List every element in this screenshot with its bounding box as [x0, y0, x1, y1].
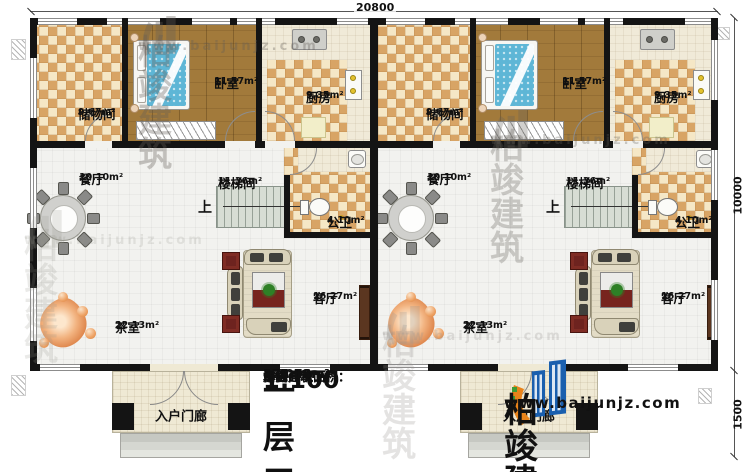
- section-marker: [11, 375, 26, 396]
- window: [30, 168, 37, 228]
- stairs-up-label: 上: [198, 197, 212, 217]
- sofa-cushion: [250, 253, 264, 262]
- door-opening: [265, 141, 295, 148]
- window: [711, 40, 718, 100]
- dining-table: [40, 195, 86, 241]
- dining-chair: [87, 213, 100, 224]
- burner: [698, 88, 704, 94]
- dining-chair: [406, 182, 417, 195]
- section-marker: [11, 39, 26, 60]
- toilet-tank: [300, 200, 309, 215]
- window: [30, 58, 37, 118]
- door-opening: [573, 141, 603, 148]
- porch-pillar: [228, 403, 250, 430]
- section-marker: [716, 27, 730, 40]
- floor-plan-canvas: 20800 10000 1500: [0, 0, 750, 472]
- nightstand-lamp: [478, 33, 487, 42]
- sofa: [227, 266, 243, 320]
- wardrobe: [136, 121, 216, 140]
- tea-room-decor-ball: [39, 338, 49, 348]
- window: [386, 18, 425, 25]
- kitchen-table: [301, 117, 326, 138]
- porch-left: 入户门廊: [112, 371, 250, 459]
- window: [30, 288, 37, 341]
- dining-table-set: [378, 185, 444, 251]
- wall: [122, 18, 128, 148]
- dining-table-set: [30, 185, 96, 251]
- party-wall: [370, 18, 378, 371]
- coffee-table: [600, 272, 633, 308]
- dining-chair: [406, 242, 417, 255]
- toilet-tank: [648, 200, 657, 215]
- sofa-cushion: [579, 288, 588, 301]
- unit-right: 储物间 9.67m² 卧室 11.57m² 厨房 9.35m² 餐厅 10.10…: [378, 18, 718, 371]
- sofa-cushion: [231, 288, 240, 301]
- sofa-cushion: [271, 322, 287, 332]
- tea-room-decor-ball: [425, 306, 436, 317]
- entry-door-opening: [150, 364, 218, 371]
- dimension-total-width: 20800: [354, 1, 396, 14]
- tea-room-decor-ball: [58, 292, 68, 302]
- staircase: [216, 186, 290, 228]
- pillow: [485, 77, 494, 103]
- staircase: [564, 186, 638, 228]
- porch-pillar: [460, 403, 482, 430]
- kitchen-sink: [640, 29, 675, 50]
- faucet: [298, 36, 305, 43]
- window: [107, 18, 160, 25]
- brand-website: www.baijunjz.com: [504, 394, 681, 412]
- dining-chair: [58, 182, 69, 195]
- toilet: [309, 198, 330, 216]
- room-label-porch: 入户门廊: [155, 406, 207, 425]
- unit-left: 储物间 9.67m² 卧室 11.57m² 厨房 9.35m² 餐厅 10.10…: [30, 18, 370, 371]
- tea-room-decor-ball: [433, 328, 444, 339]
- kitchen-sink: [292, 29, 327, 50]
- tv-cabinet: [359, 285, 370, 340]
- bed-mattress: [147, 44, 186, 106]
- door-opening: [85, 141, 112, 148]
- sofa: [575, 266, 591, 320]
- sofa-cushion: [619, 322, 635, 332]
- sofa: [592, 249, 639, 265]
- pillow: [137, 77, 146, 103]
- side-table: [222, 252, 240, 270]
- door-opening: [613, 141, 643, 148]
- side-table: [570, 315, 588, 333]
- entry-steps: [120, 433, 242, 458]
- tea-room-decor-ball: [406, 292, 416, 302]
- wall: [632, 175, 638, 238]
- bathroom-sink: [348, 150, 366, 168]
- stairs-up-label: 上: [546, 197, 560, 217]
- sofa-cushion: [598, 253, 612, 262]
- chaise: [594, 318, 639, 335]
- wall: [30, 141, 370, 148]
- sofa: [244, 249, 291, 265]
- window: [40, 364, 80, 371]
- nightstand-lamp: [130, 104, 139, 113]
- sofa-cushion: [231, 272, 240, 285]
- stove: [693, 70, 710, 100]
- faucet: [661, 36, 668, 43]
- tea-room-decor-ball: [77, 306, 88, 317]
- dining-table: [388, 195, 434, 241]
- nightstand-lamp: [130, 33, 139, 42]
- dimension-porch-depth: 1500: [732, 389, 745, 441]
- window: [388, 364, 428, 371]
- window: [192, 18, 230, 25]
- stair-direction-line: [571, 206, 656, 207]
- side-table: [570, 252, 588, 270]
- window: [711, 150, 718, 200]
- wall: [378, 141, 718, 148]
- faucet: [646, 36, 653, 43]
- stair-direction-line: [223, 206, 308, 207]
- window: [455, 18, 508, 25]
- dimension-main-depth: 10000: [732, 170, 745, 222]
- toilet: [657, 198, 678, 216]
- tea-room-decor-ball: [85, 328, 96, 339]
- sofa-cushion: [269, 253, 283, 262]
- porch-pillar: [112, 403, 134, 430]
- bed: [133, 40, 190, 110]
- window: [628, 364, 678, 371]
- wardrobe: [484, 121, 564, 140]
- burner: [698, 75, 704, 81]
- plant: [263, 284, 275, 296]
- side-table: [222, 315, 240, 333]
- chaise: [246, 318, 291, 335]
- bed-mattress: [495, 44, 534, 106]
- pillow: [137, 45, 146, 71]
- dining-chair: [435, 213, 448, 224]
- nightstand-lamp: [478, 104, 487, 113]
- stove: [345, 70, 362, 100]
- door-opening: [225, 141, 255, 148]
- window: [337, 18, 368, 25]
- wall: [470, 18, 476, 148]
- door-opening: [433, 141, 460, 148]
- window: [540, 18, 578, 25]
- window: [711, 280, 718, 340]
- faucet: [313, 36, 320, 43]
- wall: [632, 232, 718, 238]
- pillow: [485, 45, 494, 71]
- coffee-table: [252, 272, 285, 308]
- burner: [350, 75, 356, 81]
- wall: [284, 232, 370, 238]
- burner: [350, 88, 356, 94]
- tea-room-decor-ball: [387, 338, 397, 348]
- bed: [481, 40, 538, 110]
- plant: [611, 284, 623, 296]
- dining-chair: [58, 242, 69, 255]
- sofa-cushion: [617, 253, 631, 262]
- kitchen-table: [649, 117, 674, 138]
- section-marker: [698, 388, 712, 404]
- sofa-cushion: [579, 272, 588, 285]
- wall: [284, 175, 290, 238]
- window: [38, 18, 77, 25]
